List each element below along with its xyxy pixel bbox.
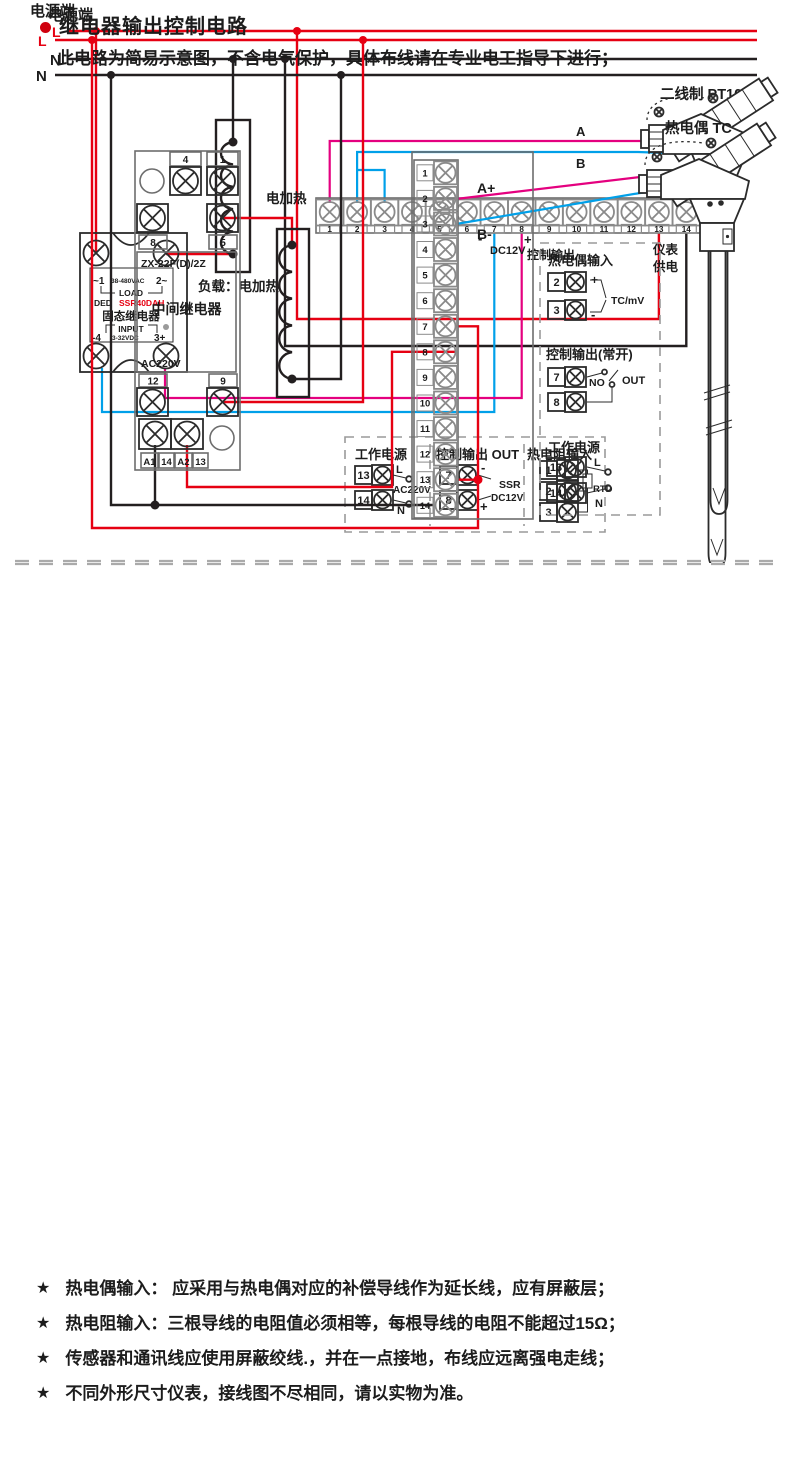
junction-dot: [88, 36, 96, 44]
legend2-t14: 14: [550, 488, 563, 500]
legend2-power-title: 工作电源: [548, 440, 600, 455]
terminal-number: 12: [420, 450, 431, 461]
note-item: ★ 热电阻输入：三根导线的电阻值必须相等，每根导线的电阻不能超过15Ω；: [36, 1313, 766, 1335]
relay-a2: A2: [177, 457, 189, 468]
legend2-out: OUT: [622, 375, 646, 387]
note-text: 传感器和通讯线应使用屏蔽绞线.，并在一点接地，布线应远离强电走线；: [65, 1348, 614, 1370]
relay-t12: 12: [147, 377, 159, 388]
relay-voltage: AC220V: [141, 358, 181, 370]
junction-dot: [359, 36, 367, 44]
heater-coil: [279, 245, 292, 379]
relay-model: ZX-22F(D)/2Z: [141, 258, 206, 270]
junction-dot: [151, 501, 160, 510]
line-n-label: N: [36, 68, 47, 85]
instrument-box: [412, 152, 533, 519]
star-icon: ★: [36, 1278, 50, 1300]
legend2-no: NO: [589, 377, 605, 389]
legend2-l: L: [594, 457, 601, 469]
relay-t5: 5: [220, 238, 226, 249]
terminal-number: 14: [420, 501, 431, 512]
legend2-minus: -: [591, 307, 595, 322]
note-text: 热电偶输入： 应采用与热电偶对应的补偿导线作为延长线，应有屏蔽层；: [65, 1278, 614, 1300]
junction-dot: [107, 71, 115, 79]
line-l-label: L: [38, 33, 47, 49]
heater-to-n-wire: [292, 75, 341, 379]
relay-t1: 1: [220, 155, 226, 166]
legend2-t8: 8: [553, 397, 559, 409]
tc-label: 热电偶 TC: [665, 119, 732, 137]
terminal-strip-2: 1 2 3 4 5 6 7 8 9 10 11 12 13 14: [414, 160, 458, 518]
relay-output-wiring-diagram: 电源端 L N 4 1: [0, 0, 790, 563]
notes-list: ★ 热电偶输入： 应采用与热电偶对应的补偿导线作为延长线，应有屏蔽层； ★ 热电…: [36, 1278, 766, 1418]
note-item: ★ 热电偶输入： 应采用与热电偶对应的补偿导线作为延长线，应有屏蔽层；: [36, 1278, 766, 1300]
note-item: ★ 传感器和通讯线应使用屏蔽绞线.，并在一点接地，布线应远离强电走线；: [36, 1348, 766, 1370]
note-item: ★ 不同外形尺寸仪表，接线图不尽相同，请以实物为准。: [36, 1383, 766, 1405]
probe: [709, 251, 726, 563]
terminal-number: 10: [420, 399, 431, 410]
relay-t9: 9: [220, 377, 226, 388]
legend-box-2: 热电偶输入 2 3 + - TC/mV 控制输出(常开) 7 8 NO OUT …: [540, 243, 660, 515]
note-text: 不同外形尺寸仪表，接线图不尽相同，请以实物为准。: [65, 1383, 473, 1405]
n-loop-to-terminal14-wire: [111, 75, 434, 505]
relay-t8: 8: [150, 238, 156, 249]
terminal-number: 5: [422, 271, 428, 282]
terminal-number: 8: [422, 347, 427, 358]
legend2-t2: 2: [553, 277, 559, 289]
star-icon: ★: [36, 1313, 50, 1335]
terminal-number: 9: [422, 373, 427, 384]
terminal-number: 6: [422, 296, 427, 307]
heater-label: 电加热: [266, 190, 307, 206]
power-rails: [55, 40, 757, 75]
junction-dot: [337, 71, 345, 79]
power-terminal-label: 电源端: [30, 2, 75, 20]
legend2-t7: 7: [553, 372, 559, 384]
legend2-n: N: [595, 498, 603, 510]
junction-dot: [474, 475, 483, 484]
star-icon: ★: [36, 1383, 50, 1405]
terminal-number: 2: [422, 194, 427, 205]
legend2-tcmv: TC/mV: [611, 295, 644, 307]
heater-load: [277, 229, 309, 397]
legend2-t3: 3: [553, 305, 559, 317]
relay-module: 4 1 8 5 ZX-22F(D)/2Z 中间继电器 AC220V 12 9: [135, 151, 240, 470]
a-plus-label: A+: [477, 180, 495, 196]
terminal-number: 7: [422, 322, 427, 333]
wires: [88, 36, 721, 528]
relay-t14: 14: [161, 457, 172, 468]
b-minus-label: B-: [477, 226, 492, 242]
relay-t4: 4: [183, 155, 189, 166]
terminal-number: 13: [420, 475, 431, 486]
terminal-number: 1: [422, 168, 428, 179]
terminal-number: 3: [422, 220, 427, 231]
legend2-t13: 13: [550, 462, 562, 474]
star-icon: ★: [36, 1348, 50, 1370]
relay-name: 中间继电器: [152, 301, 223, 317]
relay-a1: A1: [143, 457, 156, 468]
terminal-number: 4: [422, 245, 428, 256]
relay-t13: 13: [195, 457, 206, 468]
wiring-diagram-page: 电源端 L N A B 负载：电加热: [0, 0, 790, 1469]
note-text: 热电阻输入：三根导线的电阻值必须相等，每根导线的电阻不能超过15Ω；: [65, 1313, 625, 1335]
legend2-out-title: 控制输出(常开): [546, 347, 633, 362]
legend2-plus: +: [591, 273, 598, 287]
legend-tc-title: 热电偶输入: [548, 253, 613, 268]
terminal-number: 11: [420, 424, 431, 435]
